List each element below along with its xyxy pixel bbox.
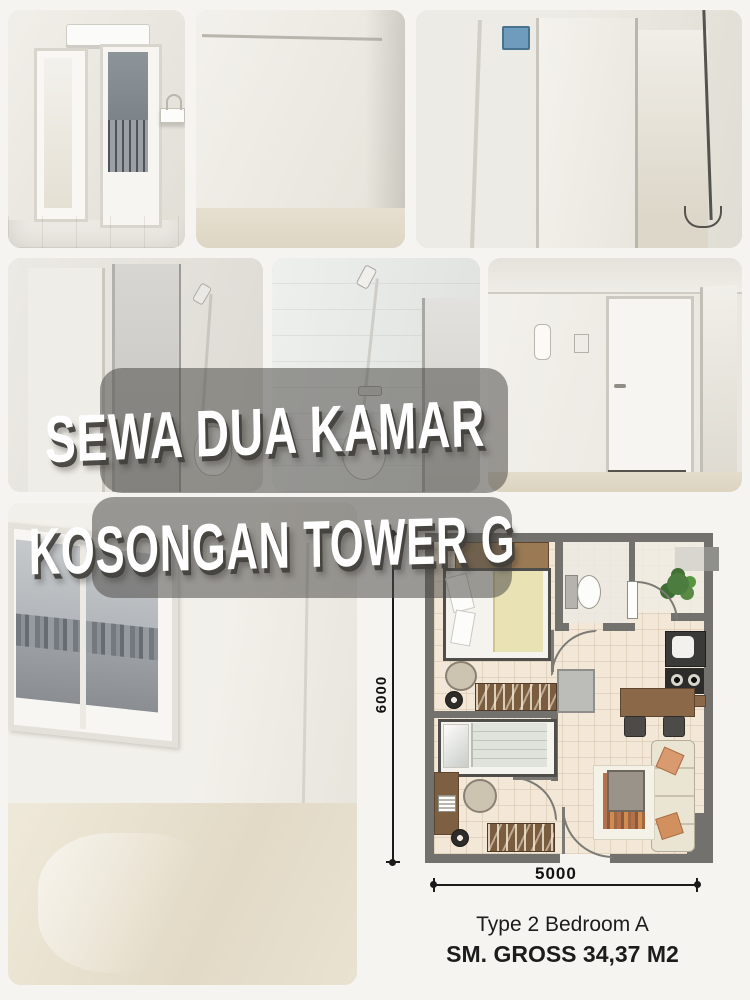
kitchen-sink-basin [672, 636, 694, 658]
open-door [536, 18, 638, 248]
poster-title-line1: SEWA DUA KAMAR [44, 390, 485, 472]
wall-bedroom1-right [555, 533, 563, 630]
balcony-railing [108, 120, 148, 172]
bedroom1-wardrobe [475, 683, 557, 711]
entrance-door-leaf [562, 807, 565, 854]
main-door-handle [614, 384, 626, 388]
bedroom2-knob [451, 829, 469, 847]
balcony-plant [667, 573, 689, 595]
tiled-floor [8, 216, 185, 248]
photo-hallway-kitchen [8, 10, 185, 248]
kitchen-sink [160, 108, 185, 123]
wall-under-bath-right [603, 623, 635, 631]
bedroom2-door-leaf [513, 777, 553, 780]
floor-reflection [38, 833, 218, 973]
breaker-box [502, 26, 530, 50]
fridge-cabinet [557, 669, 595, 713]
photo-entrance [488, 258, 742, 492]
dining-chair-b [663, 716, 685, 737]
interior-door-opening [44, 58, 72, 208]
side-open-door [700, 285, 737, 492]
photo-corner-door [416, 10, 742, 248]
plan-gross-label: SM. GROSS 34,37 M2 [375, 941, 750, 968]
floor [488, 472, 742, 492]
dining-table [620, 688, 695, 717]
main-door [606, 296, 694, 484]
plan-wall-bottom-left [425, 854, 560, 863]
dining-chair-a [624, 716, 646, 737]
bathroom-door-leaf [551, 630, 554, 672]
floor [196, 208, 405, 248]
poster-title-line2: KOSONGAN TOWER G [28, 506, 515, 585]
dim-line-horizontal [433, 884, 698, 886]
toilet-bowl [577, 575, 601, 609]
dim-width-label: 5000 [535, 864, 577, 884]
bedroom2-radiator [438, 795, 456, 812]
bedroom1-knob [445, 691, 463, 709]
photo-empty-room [196, 10, 405, 248]
bedroom1-chair [445, 661, 477, 691]
ac-unit [66, 24, 150, 46]
intercom-handset [534, 324, 551, 360]
bed2-blanket [471, 723, 547, 767]
coffee-table [607, 770, 645, 812]
stove-burner-a [671, 674, 683, 686]
plan-type-label: Type 2 Bedroom A [375, 913, 750, 937]
bedroom2-chair [463, 779, 497, 813]
wall-under-bath-left [555, 623, 569, 631]
wall-bedroom2-top [434, 711, 558, 718]
dim-height-label: 6000 [373, 676, 390, 713]
stove-burner-b [688, 674, 700, 686]
sink-faucet [166, 94, 182, 110]
bed2-pillow [443, 724, 469, 768]
switch-panel [574, 334, 589, 353]
bedroom2-wardrobe [487, 823, 555, 852]
listing-poster: 6000 5000 Type 2 Bedroom A SM. GROSS 34,… [0, 0, 750, 1000]
